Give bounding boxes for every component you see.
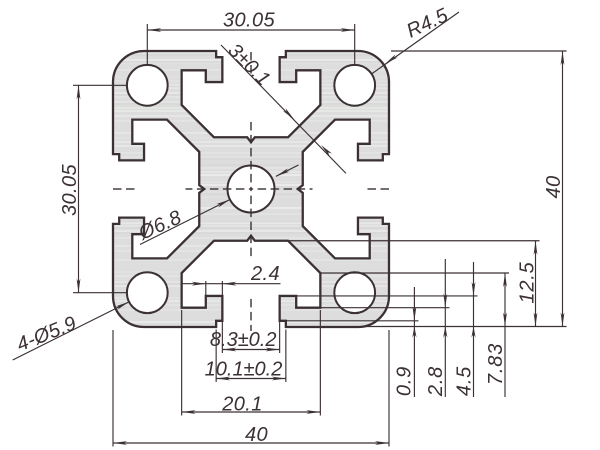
svg-text:40: 40 [245, 424, 268, 446]
svg-text:12.5: 12.5 [517, 261, 539, 303]
svg-text:10.1±0.2: 10.1±0.2 [205, 359, 283, 381]
svg-text:30.05: 30.05 [223, 10, 276, 32]
svg-text:7.83: 7.83 [485, 343, 507, 385]
svg-text:30.05: 30.05 [59, 164, 81, 217]
svg-text:8.3±0.2: 8.3±0.2 [210, 329, 277, 351]
svg-text:2.8: 2.8 [425, 366, 447, 397]
svg-text:4.5: 4.5 [453, 366, 475, 396]
svg-text:0.9: 0.9 [394, 366, 416, 396]
svg-text:40: 40 [543, 175, 565, 198]
svg-text:20.1: 20.1 [221, 394, 263, 416]
svg-text:2.4: 2.4 [250, 263, 280, 285]
